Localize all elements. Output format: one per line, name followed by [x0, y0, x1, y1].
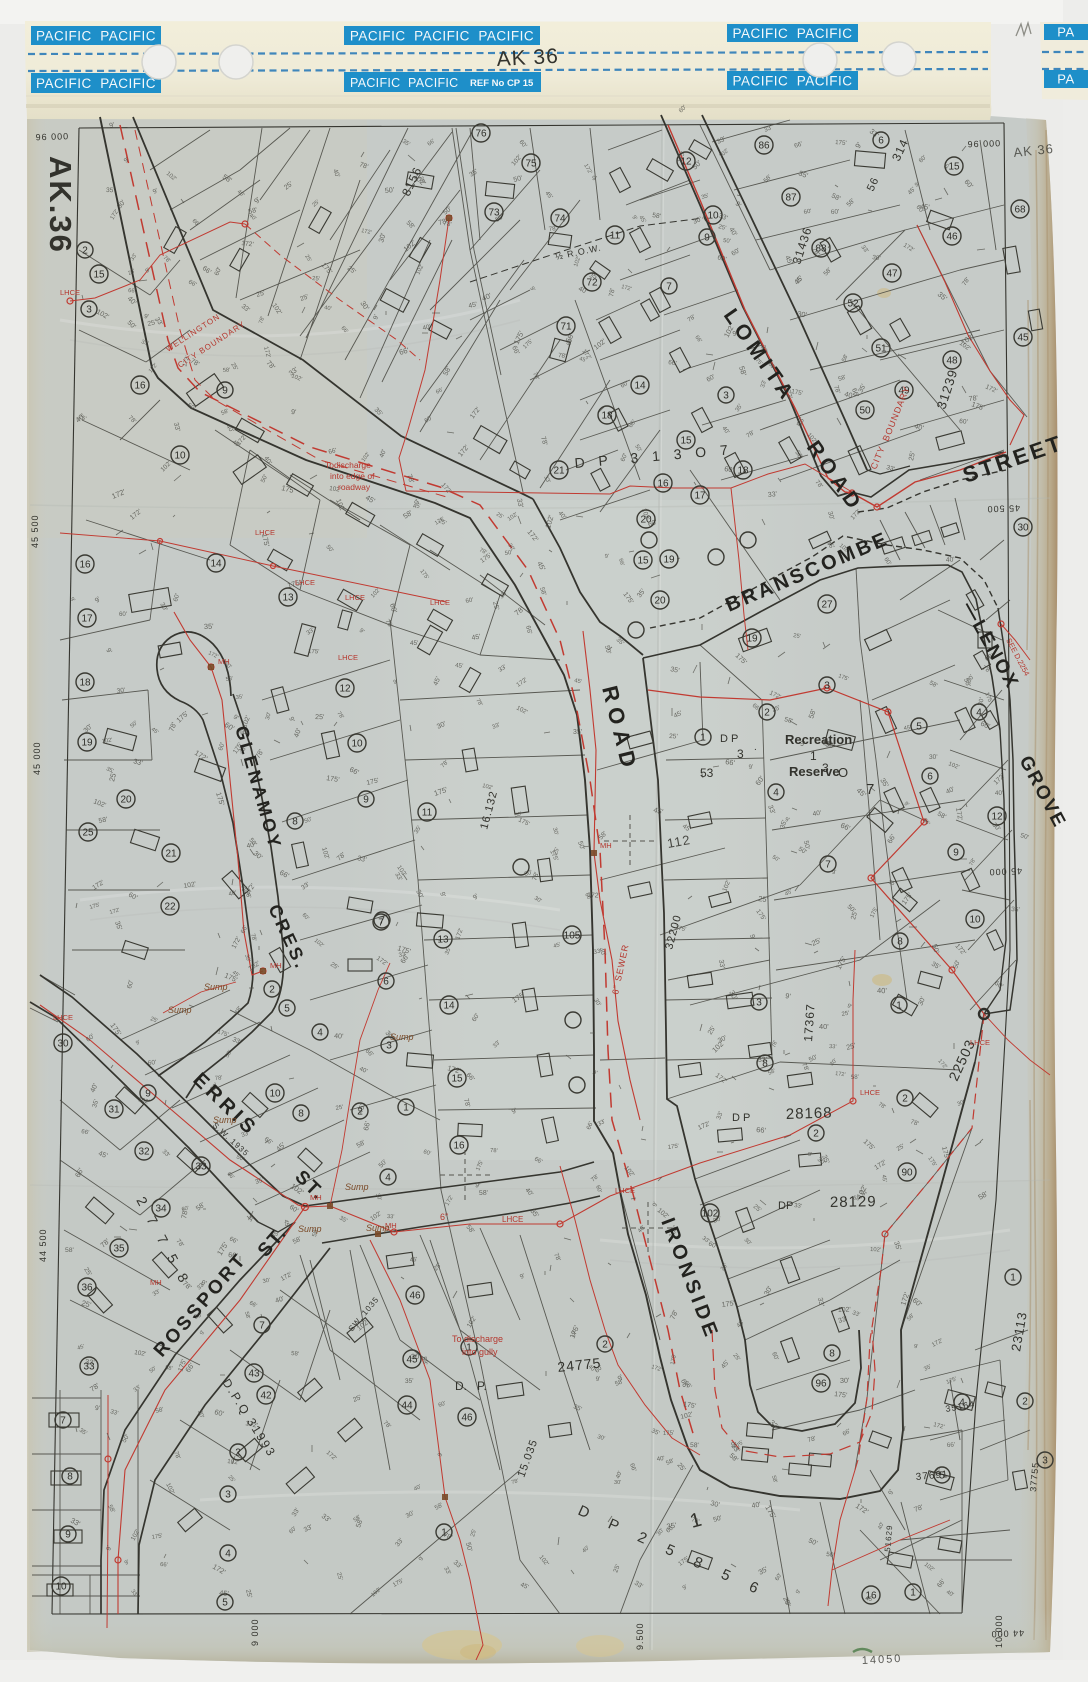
svg-text:53: 53	[700, 766, 714, 780]
svg-text:2: 2	[902, 1094, 908, 1105]
svg-text:35': 35'	[236, 694, 244, 701]
svg-text:3: 3	[822, 761, 829, 775]
svg-text:175': 175'	[663, 1430, 675, 1437]
svg-text:12: 12	[680, 157, 692, 168]
svg-text:45': 45'	[880, 1174, 887, 1182]
svg-text:7: 7	[259, 1321, 265, 1332]
svg-text:58': 58'	[479, 1190, 488, 1197]
svg-text:10: 10	[55, 1582, 67, 1593]
svg-text:4: 4	[225, 1549, 231, 1560]
svg-text:21: 21	[553, 466, 565, 477]
svg-text:9': 9'	[592, 175, 597, 182]
svg-text:Sump: Sump	[366, 1223, 390, 1233]
svg-text:DP: DP	[778, 1200, 793, 1212]
svg-text:3: 3	[386, 1041, 392, 1052]
svg-text:48: 48	[946, 356, 958, 367]
svg-text:.: .	[754, 742, 757, 753]
svg-text:6”: 6”	[440, 1212, 448, 1222]
svg-text:40': 40'	[946, 556, 955, 564]
svg-text:45': 45'	[455, 662, 464, 670]
svg-text:58': 58'	[165, 1365, 173, 1372]
svg-text:PACIFIC PACIFIC PACIFIC: PACIFIC PACIFIC PACIFIC	[350, 28, 534, 43]
svg-text:60': 60'	[147, 1059, 156, 1067]
svg-text:45 000: 45 000	[988, 866, 1022, 877]
svg-text:35': 35'	[573, 729, 582, 736]
svg-text:102': 102'	[870, 1247, 881, 1254]
svg-text:78': 78'	[443, 220, 452, 228]
svg-text:28129: 28129	[830, 1193, 877, 1211]
svg-text:66': 66'	[668, 359, 677, 367]
svg-text:44: 44	[401, 1401, 413, 1412]
svg-text:8: 8	[298, 1109, 304, 1120]
svg-text:50': 50'	[826, 1551, 835, 1559]
svg-text:MH: MH	[310, 1193, 322, 1202]
svg-text:60': 60'	[831, 208, 840, 216]
svg-text:87: 87	[785, 193, 797, 204]
svg-text:12: 12	[991, 812, 1003, 823]
svg-text:40': 40'	[334, 1032, 344, 1041]
svg-text:Reserve: Reserve	[789, 764, 840, 779]
svg-text:Sump: Sump	[168, 1005, 192, 1015]
svg-text:58': 58'	[223, 367, 231, 374]
svg-text:7: 7	[379, 916, 385, 927]
svg-text:45': 45'	[903, 725, 911, 732]
svg-text:6: 6	[383, 977, 389, 988]
svg-text:LHCE: LHCE	[345, 593, 365, 602]
svg-text:LHCE: LHCE	[53, 1013, 73, 1022]
svg-text:13: 13	[282, 593, 294, 604]
svg-text:172': 172'	[835, 1071, 846, 1078]
svg-text:8: 8	[762, 1059, 768, 1070]
svg-text:16: 16	[657, 479, 669, 490]
svg-text:1: 1	[403, 1103, 409, 1114]
svg-text:AK.36: AK.36	[43, 156, 78, 254]
svg-text:16: 16	[453, 1141, 465, 1152]
svg-text:AK 36: AK 36	[496, 45, 559, 71]
svg-text:45 500: 45 500	[30, 514, 40, 548]
svg-text:PACIFIC PACIFIC: PACIFIC PACIFIC	[36, 76, 156, 91]
svg-text:52: 52	[847, 299, 859, 310]
svg-text:3: 3	[225, 1490, 231, 1501]
svg-text:45 500: 45 500	[986, 503, 1020, 514]
svg-text:45': 45'	[410, 640, 418, 647]
svg-text:88: 88	[815, 244, 827, 255]
svg-text:4: 4	[317, 1028, 323, 1039]
svg-text:9.500: 9.500	[635, 1622, 645, 1650]
svg-text:36: 36	[81, 1283, 93, 1294]
svg-text:45: 45	[406, 1355, 418, 1366]
svg-text:30: 30	[57, 1039, 69, 1050]
svg-text:11: 11	[422, 808, 433, 819]
svg-text:22: 22	[164, 902, 176, 913]
svg-text:Sump: Sump	[390, 1032, 414, 1042]
svg-text:18: 18	[737, 466, 749, 477]
svg-text:66': 66'	[756, 1125, 767, 1135]
svg-text:40': 40'	[656, 1455, 665, 1463]
svg-text:LHCE: LHCE	[502, 1215, 523, 1224]
svg-text:9: 9	[222, 386, 228, 397]
svg-text:17: 17	[81, 614, 93, 625]
svg-text:27: 27	[821, 600, 833, 611]
svg-text:46: 46	[461, 1413, 473, 1424]
svg-text:90: 90	[901, 1168, 913, 1179]
svg-text:1: 1	[441, 1528, 447, 1539]
svg-text:17: 17	[694, 491, 706, 502]
svg-text:19: 19	[746, 634, 758, 645]
svg-text:66': 66'	[128, 288, 136, 295]
svg-text:40': 40'	[324, 305, 332, 312]
svg-text:15: 15	[637, 556, 649, 567]
svg-text:1: 1	[896, 1001, 902, 1012]
svg-text:31: 31	[108, 1105, 120, 1116]
svg-text:roadway: roadway	[338, 482, 371, 492]
svg-text:46: 46	[409, 1291, 421, 1302]
svg-text:17367: 17367	[801, 1003, 818, 1042]
svg-text:15: 15	[948, 162, 960, 173]
svg-text:66': 66'	[160, 1562, 168, 1569]
svg-text:25': 25'	[312, 276, 320, 283]
svg-text:78': 78'	[490, 1148, 498, 1154]
svg-text:into edge of: into edge of	[330, 471, 375, 481]
svg-text:47: 47	[886, 269, 898, 280]
svg-text:Sump: Sump	[204, 982, 228, 992]
svg-text:9 000: 9 000	[250, 1618, 260, 1646]
svg-text:14: 14	[443, 1001, 455, 1012]
svg-text:2: 2	[82, 246, 88, 257]
svg-text:33: 33	[195, 1162, 207, 1173]
svg-text:PACIFIC PACIFIC: PACIFIC PACIFIC	[732, 73, 852, 88]
svg-text:D. P.: D. P.	[455, 1379, 487, 1393]
svg-text:40': 40'	[819, 1022, 829, 1031]
svg-text:42: 42	[260, 1391, 272, 1402]
svg-text:58': 58'	[225, 676, 233, 683]
svg-text:10: 10	[707, 211, 719, 222]
svg-text:40': 40'	[995, 790, 1004, 797]
svg-text:78': 78'	[241, 885, 250, 893]
svg-text:19: 19	[81, 738, 93, 749]
svg-text:PA: PA	[1057, 72, 1074, 87]
svg-text:25': 25'	[315, 713, 325, 721]
svg-text:5: 5	[284, 1004, 290, 1015]
svg-text:43: 43	[248, 1369, 260, 1380]
svg-text:50': 50'	[504, 550, 512, 557]
svg-text:9': 9'	[605, 554, 610, 560]
svg-text:9': 9'	[914, 1344, 918, 1350]
svg-text:74: 74	[554, 214, 566, 225]
svg-text:14: 14	[210, 559, 222, 570]
svg-text:9: 9	[145, 1089, 151, 1100]
svg-text:44 500: 44 500	[38, 1228, 48, 1262]
svg-text:102: 102	[702, 1209, 719, 1220]
svg-text:4: 4	[385, 1173, 391, 1184]
svg-text:96: 96	[815, 1379, 827, 1390]
svg-text:35': 35'	[1011, 906, 1020, 914]
svg-text:9: 9	[953, 848, 959, 859]
svg-text:PACIFIC PACIFIC: PACIFIC PACIFIC	[36, 28, 156, 43]
svg-text:MH: MH	[600, 841, 612, 850]
svg-text:3: 3	[1042, 1456, 1048, 1467]
svg-text:PA: PA	[1057, 25, 1074, 40]
svg-text:58': 58'	[291, 1351, 299, 1358]
svg-text:3: 3	[756, 998, 762, 1009]
svg-text:11: 11	[610, 231, 621, 242]
svg-text:18: 18	[79, 678, 91, 689]
svg-text:Todischarge: Todischarge	[325, 460, 371, 470]
svg-text:15: 15	[451, 1074, 463, 1085]
svg-text:9': 9'	[595, 1375, 600, 1383]
svg-text:3: 3	[723, 391, 729, 402]
svg-text:20: 20	[120, 795, 132, 806]
svg-text:45': 45'	[920, 202, 931, 212]
svg-text:2: 2	[1022, 1397, 1028, 1408]
svg-text:9': 9'	[144, 313, 150, 321]
svg-text:3: 3	[824, 681, 830, 692]
svg-text:20: 20	[654, 596, 666, 607]
svg-text:33': 33'	[767, 490, 777, 499]
svg-text:D P: D P	[720, 733, 738, 745]
svg-text:102': 102'	[838, 1307, 851, 1314]
svg-text:MH: MH	[218, 657, 230, 666]
svg-text:9': 9'	[808, 1152, 812, 1158]
svg-text:5: 5	[916, 722, 922, 733]
svg-text:19: 19	[663, 555, 675, 566]
svg-text:1: 1	[700, 733, 706, 744]
svg-text:68: 68	[1014, 205, 1026, 216]
svg-text:25': 25'	[758, 894, 769, 904]
svg-text:6: 6	[927, 772, 933, 783]
svg-text:44 000: 44 000	[990, 1628, 1024, 1639]
svg-text:66': 66'	[81, 1128, 90, 1136]
svg-text:33': 33'	[794, 1203, 803, 1210]
svg-text:000 96: 000 96	[966, 138, 1000, 149]
svg-text:LHCE: LHCE	[60, 288, 80, 297]
svg-text:175': 175'	[308, 648, 320, 655]
svg-text:PACIFIC PACIFIC: PACIFIC PACIFIC	[350, 76, 459, 90]
svg-text:2: 2	[357, 1107, 363, 1118]
svg-text:16: 16	[134, 381, 146, 392]
svg-text:58': 58'	[65, 1247, 74, 1254]
svg-text:73: 73	[488, 208, 500, 219]
svg-text:4: 4	[773, 788, 779, 799]
svg-text:8: 8	[897, 937, 903, 948]
svg-text:To discharge: To discharge	[452, 1334, 503, 1344]
svg-text:PACIFIC PACIFIC: PACIFIC PACIFIC	[732, 26, 852, 41]
svg-text:28168: 28168	[786, 1104, 833, 1123]
svg-text:50: 50	[859, 406, 871, 417]
svg-text:Sump: Sump	[298, 1224, 322, 1234]
svg-text:12: 12	[339, 684, 351, 695]
svg-text:15: 15	[93, 270, 105, 281]
svg-text:LHCE: LHCE	[295, 578, 315, 587]
svg-text:into gully: into gully	[462, 1347, 498, 1357]
svg-text:25: 25	[82, 828, 94, 839]
svg-text:30': 30'	[929, 754, 938, 761]
svg-text:18: 18	[601, 411, 613, 422]
svg-text:9: 9	[704, 233, 710, 244]
svg-text:MH: MH	[270, 961, 282, 970]
svg-text:LHCE: LHCE	[430, 598, 450, 607]
svg-text:76: 76	[475, 129, 487, 140]
svg-text:LHCE: LHCE	[615, 1186, 635, 1195]
svg-text:60': 60'	[959, 418, 968, 426]
svg-text:50': 50'	[723, 238, 731, 245]
svg-text:O: O	[838, 765, 848, 780]
svg-text:45: 45	[1017, 333, 1029, 344]
svg-text:000 96: 000 96	[34, 131, 68, 142]
svg-text:2: 2	[269, 985, 275, 996]
svg-text:66': 66'	[947, 1441, 956, 1449]
svg-text:21: 21	[165, 849, 177, 860]
svg-text:14: 14	[634, 381, 646, 392]
svg-text:LHCE: LHCE	[970, 1038, 990, 1047]
svg-text:10: 10	[969, 915, 981, 926]
svg-text:33': 33'	[829, 1044, 837, 1050]
svg-text:3: 3	[86, 305, 92, 316]
svg-text:40': 40'	[877, 986, 887, 995]
svg-text:30': 30'	[872, 254, 881, 262]
svg-text:40': 40'	[751, 1500, 761, 1509]
svg-text:9: 9	[65, 1530, 71, 1541]
svg-text:Sump: Sump	[345, 1182, 369, 1192]
svg-text:60': 60'	[119, 611, 127, 618]
svg-text:Recreation: Recreation	[785, 732, 852, 747]
svg-text:LHCE: LHCE	[338, 653, 358, 662]
svg-text:71: 71	[560, 322, 572, 333]
svg-text:35': 35'	[666, 1520, 678, 1531]
svg-text:8: 8	[292, 817, 298, 828]
svg-text:9': 9'	[291, 409, 297, 416]
svg-text:30': 30'	[116, 687, 125, 695]
svg-text:60': 60'	[803, 208, 812, 216]
svg-text:35': 35'	[405, 1378, 414, 1385]
svg-text:30': 30'	[840, 1376, 850, 1385]
svg-text:30': 30'	[614, 1480, 621, 1486]
svg-text:58': 58'	[851, 1074, 859, 1081]
svg-text:9': 9'	[95, 1405, 100, 1412]
svg-text:8: 8	[829, 1349, 835, 1360]
svg-text:58': 58'	[690, 1442, 699, 1449]
svg-text:7: 7	[60, 1416, 66, 1427]
svg-text:6: 6	[878, 136, 884, 147]
svg-text:2: 2	[602, 1340, 608, 1351]
svg-text:175': 175'	[835, 139, 847, 147]
svg-text:7: 7	[666, 282, 672, 293]
svg-text:4: 4	[976, 708, 982, 719]
svg-text:REF No CP 15: REF No CP 15	[470, 78, 534, 89]
svg-text:35': 35'	[106, 187, 115, 194]
svg-text:7: 7	[866, 781, 874, 798]
svg-text:45 000: 45 000	[32, 741, 42, 775]
svg-text:1: 1	[810, 749, 817, 763]
svg-text:D P: D P	[732, 1112, 750, 1124]
svg-text:20: 20	[640, 515, 652, 526]
svg-text:75: 75	[525, 159, 537, 170]
svg-text:LHCE: LHCE	[860, 1088, 880, 1097]
svg-text:40': 40'	[812, 810, 822, 818]
svg-text:LHCE: LHCE	[255, 528, 275, 537]
svg-text:45': 45'	[409, 1257, 418, 1264]
svg-text:2: 2	[235, 1448, 241, 1459]
svg-text:5: 5	[222, 1598, 228, 1609]
svg-text:1: 1	[1010, 1273, 1016, 1284]
svg-text:25': 25'	[793, 633, 802, 640]
svg-text:3: 3	[737, 747, 744, 761]
svg-text:46: 46	[946, 232, 958, 243]
svg-text:7: 7	[825, 860, 831, 871]
svg-text:172': 172'	[587, 892, 600, 900]
svg-text:14050: 14050	[862, 1653, 903, 1667]
svg-text:10: 10	[174, 451, 186, 462]
svg-text:32: 32	[138, 1147, 150, 1158]
svg-text:105: 105	[564, 931, 581, 942]
svg-text:16: 16	[865, 1591, 877, 1602]
svg-text:2: 2	[813, 1129, 819, 1140]
svg-text:50': 50'	[384, 185, 395, 195]
svg-text:2: 2	[764, 708, 770, 719]
svg-text:10: 10	[351, 739, 363, 750]
svg-text:9: 9	[363, 795, 369, 806]
svg-text:58': 58'	[652, 212, 662, 220]
svg-text:10: 10	[269, 1089, 281, 1100]
svg-text:78': 78'	[558, 352, 567, 360]
svg-text:30: 30	[1017, 523, 1029, 534]
svg-text:16: 16	[79, 560, 91, 571]
svg-text:33': 33'	[387, 1214, 395, 1220]
svg-text:72: 72	[586, 278, 598, 289]
svg-text:MH: MH	[150, 1278, 162, 1287]
svg-text:33: 33	[83, 1362, 95, 1373]
svg-text:35': 35'	[204, 622, 215, 631]
svg-text:86: 86	[758, 141, 770, 152]
svg-text:35: 35	[113, 1244, 125, 1255]
svg-text:13: 13	[437, 935, 449, 946]
svg-text:8: 8	[67, 1472, 73, 1483]
svg-text:1: 1	[910, 1588, 916, 1599]
svg-text:51: 51	[875, 344, 887, 355]
svg-text:25': 25'	[669, 733, 678, 740]
